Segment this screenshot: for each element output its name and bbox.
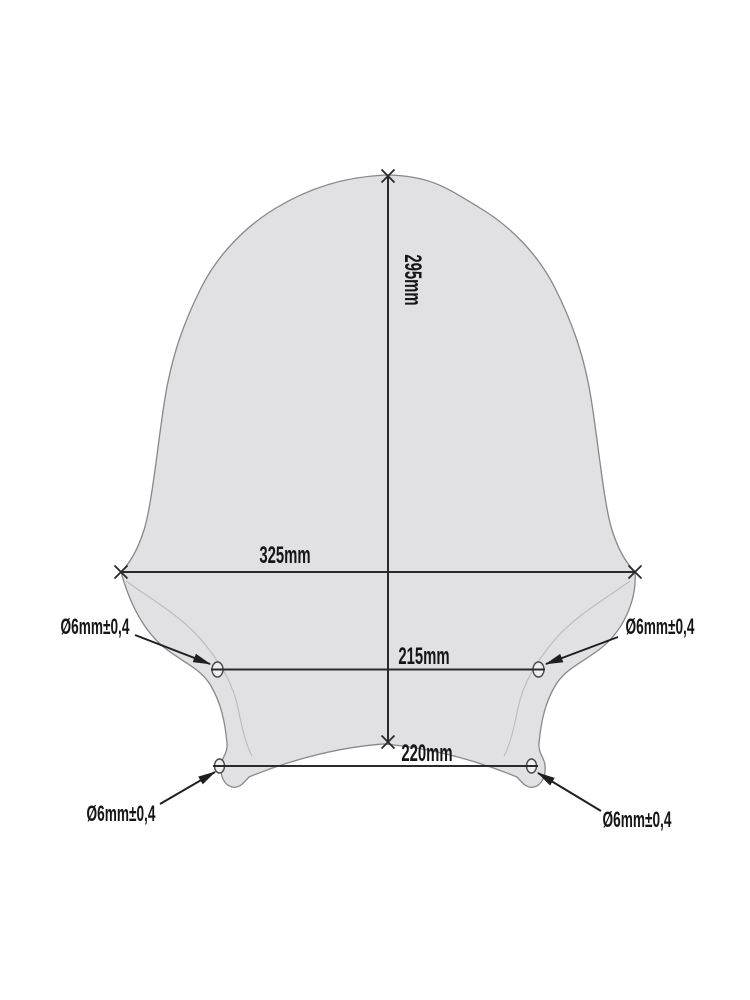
upper-hole-spacing-label: 215mm bbox=[398, 644, 449, 670]
lower-hole-spacing-label: 220mm bbox=[401, 741, 452, 767]
hole-diameter-label-bottom-right: Ø6mm±0,4 bbox=[603, 807, 672, 832]
hole-diameter-label-bottom-left: Ø6mm±0,4 bbox=[87, 801, 156, 826]
width-dimension-label: 325mm bbox=[259, 543, 310, 569]
windscreen-shape bbox=[121, 175, 635, 787]
leader-arrow-bottom-left bbox=[160, 772, 215, 804]
technical-drawing-canvas: 295mm 325mm 215mm 220mm Ø6mm±0,4 Ø6mm±0,… bbox=[0, 0, 750, 1000]
height-dimension-label: 295mm bbox=[399, 254, 425, 305]
hole-diameter-label-top-left: Ø6mm±0,4 bbox=[61, 614, 130, 639]
hole-diameter-label-top-right: Ø6mm±0,4 bbox=[626, 614, 695, 639]
drawing-page: 295mm 325mm 215mm 220mm Ø6mm±0,4 Ø6mm±0,… bbox=[0, 0, 750, 1000]
leader-arrow-bottom-right bbox=[538, 773, 601, 811]
